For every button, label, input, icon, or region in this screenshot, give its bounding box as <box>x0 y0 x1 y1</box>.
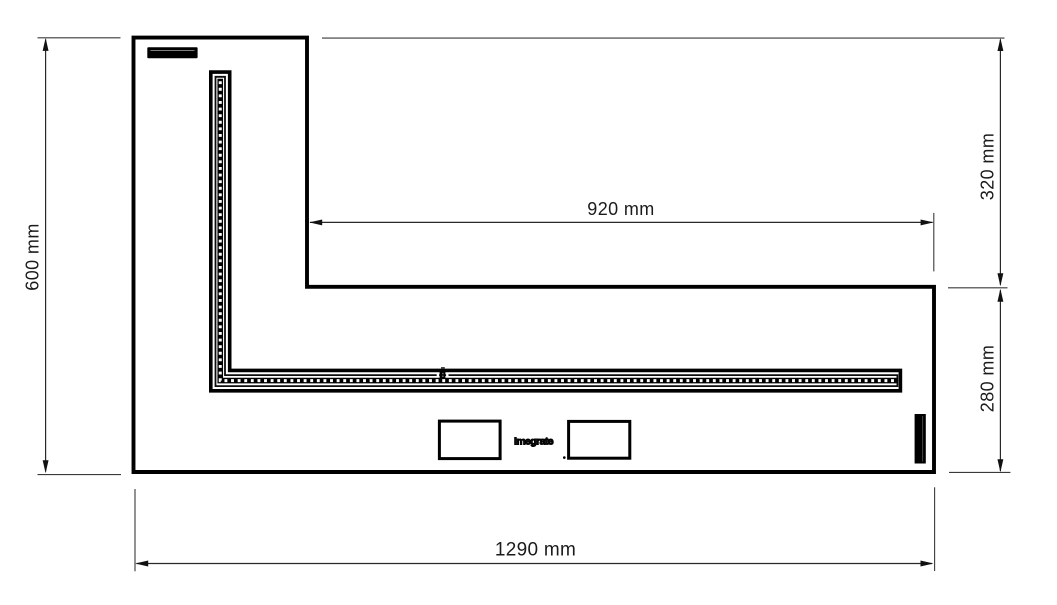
svg-text:320 mm: 320 mm <box>977 133 997 200</box>
svg-text:1290 mm: 1290 mm <box>495 540 576 561</box>
svg-text:Imegrate: Imegrate <box>514 435 554 447</box>
svg-text:920 mm: 920 mm <box>587 199 654 219</box>
svg-text:600 mm: 600 mm <box>23 223 43 290</box>
svg-text:280 mm: 280 mm <box>977 345 997 412</box>
